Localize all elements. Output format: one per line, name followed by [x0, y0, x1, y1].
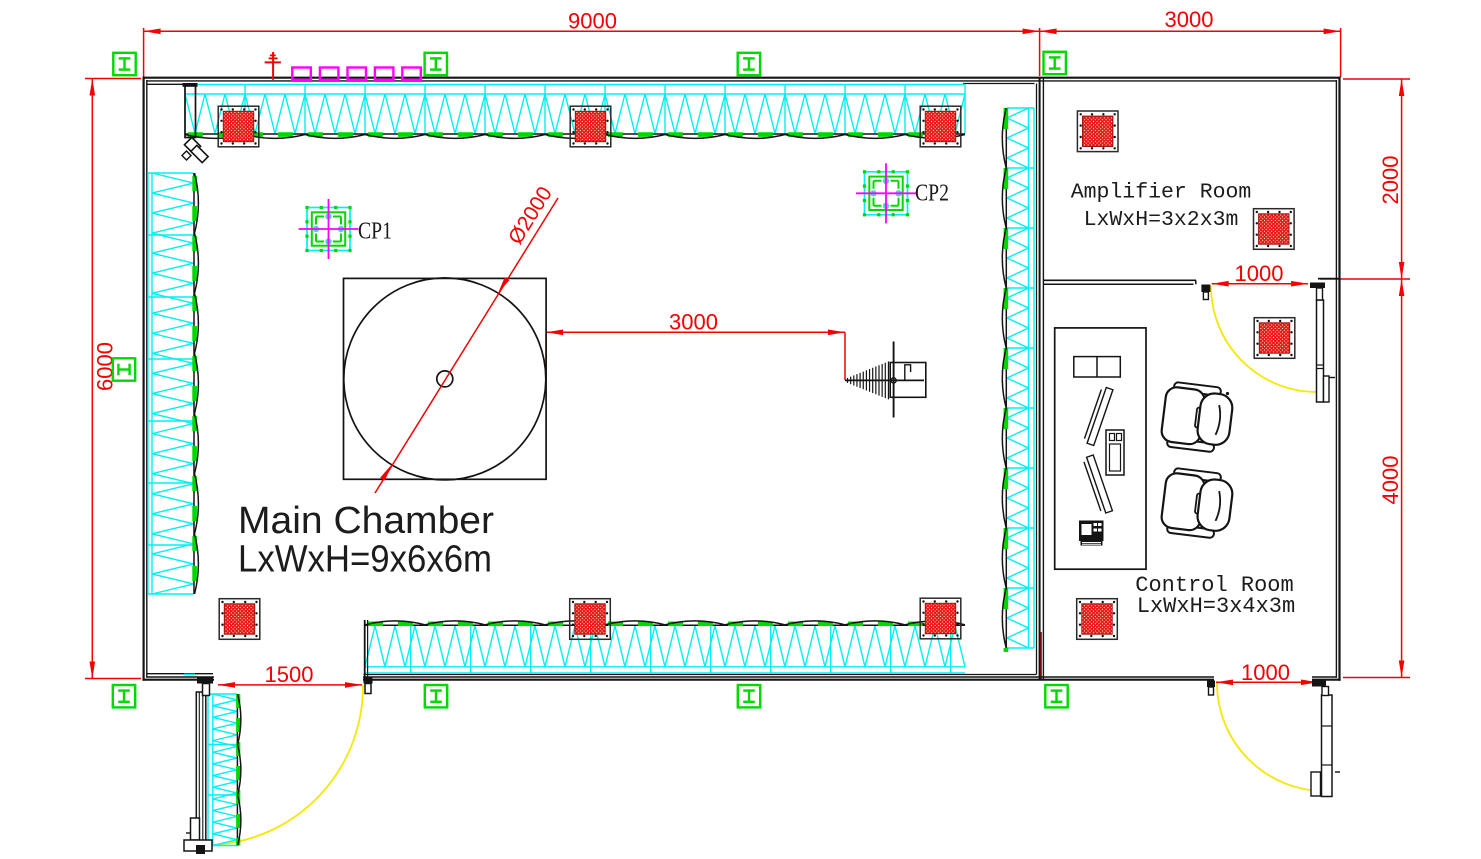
- svg-text:Amplifier Room: Amplifier Room: [1071, 180, 1252, 204]
- svg-text:1000: 1000: [1241, 660, 1290, 685]
- svg-text:9000: 9000: [568, 9, 617, 34]
- svg-text:1000: 1000: [1235, 261, 1284, 286]
- svg-text:LxWxH=9x6x6m: LxWxH=9x6x6m: [238, 539, 492, 581]
- svg-text:1500: 1500: [265, 662, 314, 687]
- svg-text:CP1: CP1: [358, 219, 392, 245]
- svg-text:3000: 3000: [1165, 7, 1214, 32]
- svg-text:4000: 4000: [1378, 456, 1403, 505]
- svg-text:3000: 3000: [669, 310, 718, 335]
- svg-text:LxWxH=3x4x3m: LxWxH=3x4x3m: [1137, 594, 1295, 619]
- svg-text:LxWxH=3x2x3m: LxWxH=3x2x3m: [1084, 208, 1239, 232]
- svg-text:2000: 2000: [1378, 156, 1403, 205]
- svg-text:Main Chamber: Main Chamber: [238, 500, 494, 542]
- svg-text:CP2: CP2: [915, 181, 949, 207]
